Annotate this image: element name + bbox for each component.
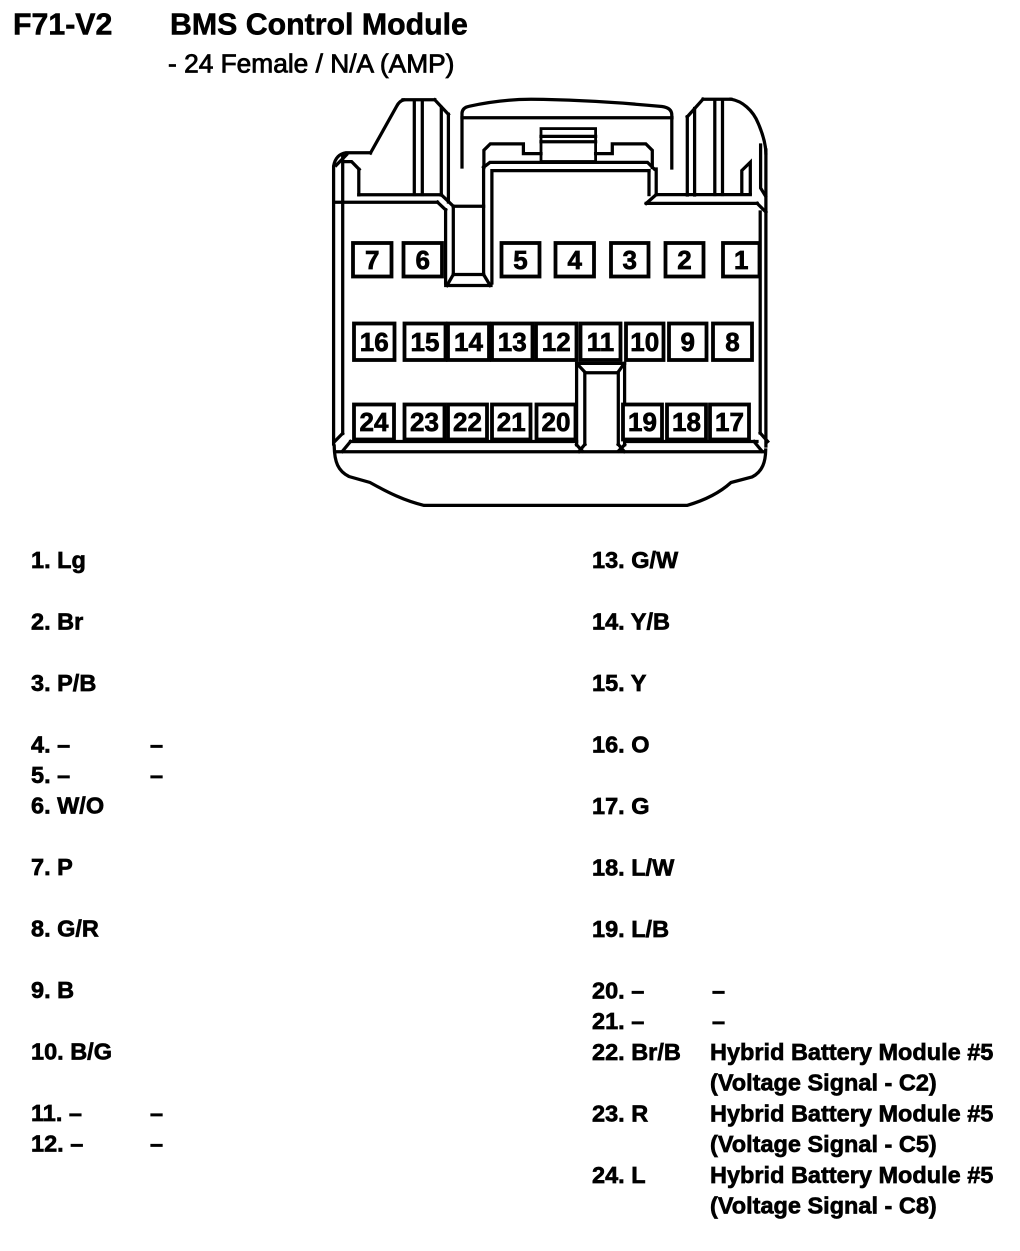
- svg-text:–: –: [150, 732, 163, 758]
- svg-text:15: 15: [411, 327, 440, 357]
- svg-text:9: 9: [680, 327, 694, 357]
- svg-text:10: 10: [630, 327, 659, 357]
- svg-text:(Voltage Signal - C2): (Voltage Signal - C2): [710, 1070, 937, 1096]
- svg-text:4: 4: [567, 245, 582, 275]
- svg-text:13: 13: [498, 327, 527, 357]
- svg-text:16: 16: [360, 327, 389, 357]
- svg-text:–: –: [150, 762, 163, 788]
- svg-text:9. B: 9. B: [31, 977, 74, 1003]
- svg-text:BMS Control Module: BMS Control Module: [170, 9, 468, 42]
- svg-text:12: 12: [542, 327, 571, 357]
- svg-text:17. G: 17. G: [592, 793, 649, 819]
- svg-text:5. –: 5. –: [31, 762, 70, 788]
- svg-text:F71-V2: F71-V2: [13, 9, 112, 42]
- svg-text:21. –: 21. –: [592, 1008, 644, 1034]
- svg-text:22: 22: [453, 407, 482, 437]
- svg-text:–: –: [712, 978, 725, 1004]
- svg-text:20. –: 20. –: [592, 978, 644, 1004]
- svg-text:7. P: 7. P: [31, 854, 73, 880]
- svg-text:Hybrid Battery Module #5: Hybrid Battery Module #5: [710, 1039, 993, 1065]
- svg-text:13. G/W: 13. G/W: [592, 547, 679, 573]
- svg-text:24. L: 24. L: [592, 1162, 646, 1188]
- svg-text:14: 14: [454, 327, 483, 357]
- svg-text:12. –: 12. –: [31, 1131, 83, 1157]
- svg-text:(Voltage Signal - C5): (Voltage Signal - C5): [710, 1131, 937, 1157]
- svg-text:- 24 Female / N/A (AMP): - 24 Female / N/A (AMP): [168, 49, 454, 79]
- svg-text:11: 11: [587, 327, 615, 357]
- svg-text:18: 18: [672, 407, 701, 437]
- svg-text:6: 6: [415, 245, 429, 275]
- svg-text:–: –: [150, 1131, 163, 1157]
- svg-text:14. Y/B: 14. Y/B: [592, 609, 670, 635]
- svg-text:24: 24: [360, 407, 389, 437]
- svg-text:–: –: [712, 1008, 725, 1034]
- svg-text:17: 17: [715, 407, 744, 437]
- svg-text:22. Br/B: 22. Br/B: [592, 1039, 681, 1065]
- svg-text:19: 19: [628, 407, 657, 437]
- svg-text:16. O: 16. O: [592, 732, 649, 758]
- svg-text:8: 8: [725, 327, 739, 357]
- svg-text:18. L/W: 18. L/W: [592, 855, 675, 881]
- svg-text:3: 3: [622, 245, 636, 275]
- svg-text:23: 23: [410, 407, 439, 437]
- svg-text:7: 7: [365, 245, 379, 275]
- svg-text:5: 5: [513, 245, 527, 275]
- svg-text:2. Br: 2. Br: [31, 609, 83, 635]
- svg-text:11. –: 11. –: [31, 1100, 82, 1126]
- svg-text:Hybrid Battery Module #5: Hybrid Battery Module #5: [710, 1101, 993, 1127]
- svg-text:1. Lg: 1. Lg: [31, 547, 86, 573]
- svg-text:6. W/O: 6. W/O: [31, 793, 104, 819]
- svg-text:20: 20: [542, 407, 571, 437]
- svg-text:4. –: 4. –: [31, 732, 70, 758]
- svg-text:8. G/R: 8. G/R: [31, 916, 99, 942]
- svg-text:2: 2: [677, 245, 691, 275]
- svg-text:21: 21: [497, 407, 526, 437]
- svg-text:Hybrid Battery Module #5: Hybrid Battery Module #5: [710, 1162, 993, 1188]
- svg-text:23. R: 23. R: [592, 1101, 648, 1127]
- svg-text:3. P/B: 3. P/B: [31, 670, 96, 696]
- svg-text:(Voltage Signal - C8): (Voltage Signal - C8): [710, 1193, 937, 1219]
- svg-text:19. L/B: 19. L/B: [592, 916, 669, 942]
- svg-text:15. Y: 15. Y: [592, 670, 647, 696]
- svg-text:1: 1: [734, 245, 748, 275]
- svg-text:–: –: [150, 1100, 163, 1126]
- svg-text:10. B/G: 10. B/G: [31, 1039, 112, 1065]
